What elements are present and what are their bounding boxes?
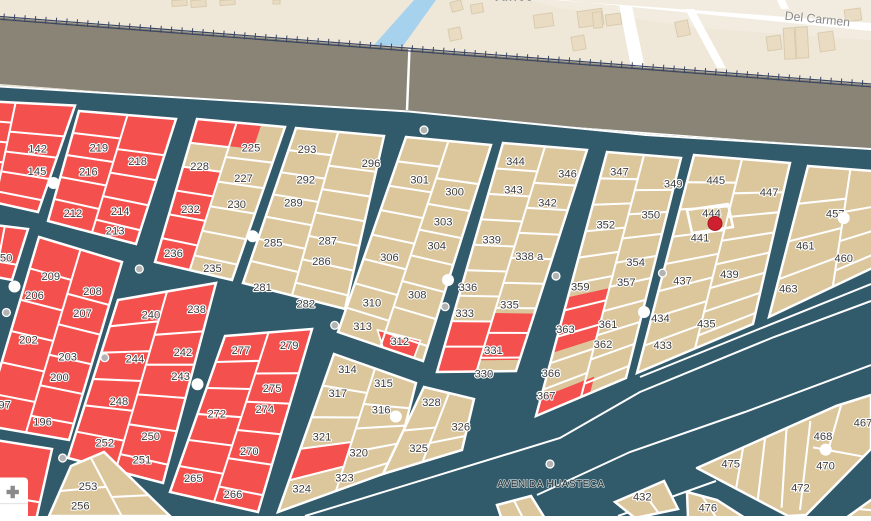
svg-text:335: 335 [500,300,519,312]
svg-text:196: 196 [33,416,52,428]
svg-text:325: 325 [409,443,428,455]
svg-text:313: 313 [353,321,372,333]
svg-text:292: 292 [296,174,315,186]
svg-text:336: 336 [459,282,478,294]
svg-text:248: 248 [110,396,129,408]
svg-text:312: 312 [390,336,409,348]
svg-text:272: 272 [207,409,226,421]
svg-text:460: 460 [834,253,853,265]
svg-text:315: 315 [374,378,393,390]
svg-text:301: 301 [410,175,429,187]
svg-text:253: 253 [79,481,98,493]
svg-text:468: 468 [814,431,833,443]
svg-text:282: 282 [296,299,315,311]
svg-text:Valles: Valles [494,0,535,4]
svg-text:303: 303 [434,217,453,229]
svg-text:251: 251 [133,454,152,466]
svg-text:467: 467 [854,418,871,430]
svg-text:227: 227 [234,173,253,185]
svg-text:240: 240 [142,309,161,321]
svg-text:216: 216 [79,167,98,179]
svg-text:289: 289 [284,197,303,209]
svg-text:441: 441 [691,233,710,245]
svg-text:238: 238 [187,304,206,316]
svg-text:439: 439 [720,269,739,281]
svg-text:207: 207 [73,308,92,320]
svg-text:476: 476 [698,502,717,514]
svg-text:281: 281 [253,282,272,294]
svg-text:352: 352 [596,220,615,232]
svg-text:209: 209 [41,271,60,283]
svg-text:367: 367 [537,391,556,403]
svg-text:304: 304 [427,240,446,252]
svg-text:206: 206 [25,290,44,302]
svg-text:274: 274 [255,404,274,416]
svg-text:434: 434 [651,313,670,325]
svg-text:308: 308 [408,289,427,301]
svg-text:366: 366 [542,368,561,380]
svg-text:252: 252 [95,438,114,450]
svg-text:314: 314 [338,364,357,376]
svg-text:145: 145 [28,166,47,178]
svg-text:293: 293 [298,144,317,156]
svg-text:361: 361 [599,319,618,331]
svg-text:432: 432 [633,491,652,503]
svg-text:470: 470 [816,461,835,473]
svg-text:230: 230 [227,199,246,211]
svg-text:202: 202 [19,334,38,346]
svg-text:256: 256 [71,501,90,513]
svg-text:203: 203 [58,351,77,363]
svg-text:AVENIDA HUASTECA: AVENIDA HUASTECA [497,479,604,490]
svg-text:197: 197 [0,400,11,412]
svg-text:357: 357 [617,277,636,289]
svg-text:200: 200 [50,372,69,384]
svg-text:208: 208 [83,286,102,298]
svg-text:331: 331 [484,345,503,357]
svg-text:277: 277 [232,345,251,357]
svg-text:330: 330 [475,369,494,381]
svg-text:339: 339 [482,234,501,246]
svg-text:142: 142 [28,143,47,155]
svg-text:463: 463 [779,284,798,296]
svg-text:287: 287 [318,236,337,248]
svg-text:472: 472 [791,483,810,495]
svg-text:324: 324 [292,484,311,496]
svg-text:310: 310 [363,298,382,310]
svg-text:437: 437 [673,275,692,287]
svg-text:317: 317 [328,388,347,400]
svg-text:338 a: 338 a [515,251,544,263]
svg-text:323: 323 [335,472,354,484]
svg-text:243: 243 [171,371,190,383]
svg-text:349: 349 [664,179,683,191]
svg-text:359: 359 [571,282,590,294]
svg-text:461: 461 [796,240,815,252]
svg-text:354: 354 [626,257,645,269]
svg-text:363: 363 [556,324,575,336]
svg-text:296: 296 [362,158,381,170]
svg-text:347: 347 [610,167,629,179]
svg-text:275: 275 [263,383,282,395]
svg-text:475: 475 [721,459,740,471]
svg-text:218: 218 [128,156,147,168]
svg-text:228: 228 [190,161,209,173]
svg-text:435: 435 [697,319,716,331]
svg-text:344: 344 [506,156,525,168]
svg-text:300: 300 [445,187,464,199]
svg-text:235: 235 [203,263,222,275]
svg-text:285: 285 [264,238,283,250]
svg-text:214: 214 [111,206,130,218]
svg-text:321: 321 [313,432,332,444]
svg-text:333: 333 [455,308,474,320]
svg-text:266: 266 [224,489,243,501]
svg-text:270: 270 [240,446,259,458]
svg-text:236: 236 [164,248,183,260]
svg-text:242: 242 [174,347,193,359]
svg-text:328: 328 [422,397,441,409]
svg-text:150: 150 [0,253,12,265]
svg-text:225: 225 [242,142,261,154]
svg-text:244: 244 [126,354,145,366]
svg-text:433: 433 [653,340,672,352]
svg-text:213: 213 [106,226,125,238]
svg-text:232: 232 [181,204,200,216]
svg-text:286: 286 [312,256,331,268]
svg-text:250: 250 [141,431,160,443]
svg-text:219: 219 [89,142,108,154]
svg-text:212: 212 [64,208,83,220]
svg-text:362: 362 [594,339,613,351]
svg-text:346: 346 [558,168,577,180]
svg-text:279: 279 [280,340,299,352]
svg-text:316: 316 [372,405,391,417]
svg-text:326: 326 [451,422,470,434]
svg-text:265: 265 [184,473,203,485]
svg-text:445: 445 [706,175,725,187]
svg-text:343: 343 [504,185,523,197]
svg-text:350: 350 [641,209,660,221]
svg-text:306: 306 [380,252,399,264]
svg-text:320: 320 [349,448,368,460]
svg-text:447: 447 [760,187,779,199]
svg-text:342: 342 [538,197,557,209]
